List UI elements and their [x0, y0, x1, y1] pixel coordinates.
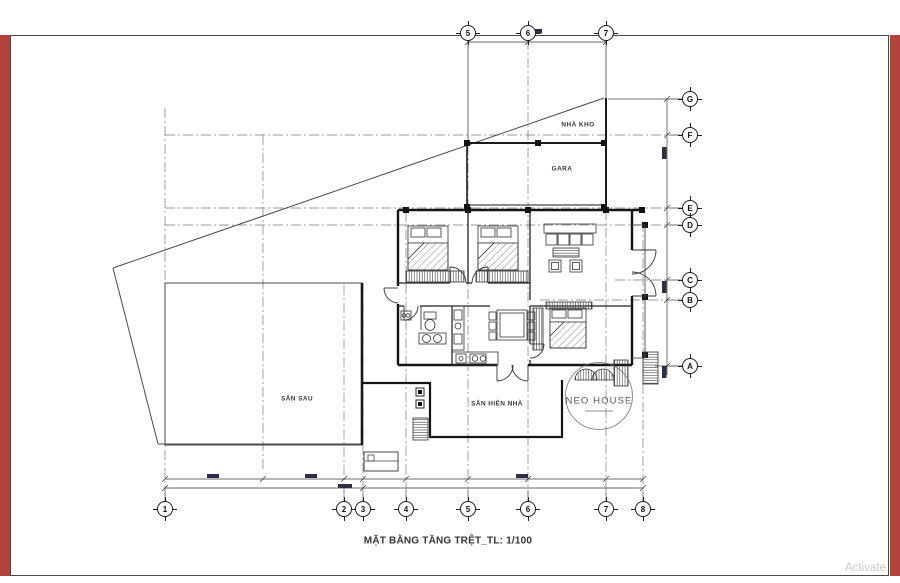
front-porch — [362, 380, 562, 471]
watermark-tagline-smudge — [585, 410, 613, 412]
right-red-bar — [890, 35, 900, 576]
garage-block — [464, 98, 607, 210]
room-label-front-porch: SÂN HIÊN NHÀ — [471, 401, 523, 408]
grid-bubble-bottom-5: 5 — [460, 501, 476, 517]
room-label-garage: GARA — [552, 166, 573, 173]
grid-bubble-bottom-7: 7 — [598, 501, 614, 517]
watermark-circle: NEO HOUSE — [565, 362, 633, 430]
grid-bubble-right-F: F — [682, 127, 698, 143]
grid-bubble-top-7: 7 — [598, 25, 614, 41]
interior-walls — [398, 210, 632, 365]
grid-bubble-bottom-8: 8 — [635, 501, 651, 517]
grid-bubble-right-D: D — [682, 217, 698, 233]
grid-bubble-right-G: G — [682, 91, 698, 107]
drawing-title: MẶT BẰNG TẦNG TRỆT_TL: 1/100 — [364, 536, 532, 547]
screenshot-root: { "page": { "title": "MẶT BẰNG TẦNG TRỆT… — [0, 0, 900, 583]
backyard-outline — [165, 283, 362, 445]
watermark-text: NEO HOUSE — [566, 395, 633, 406]
activate-watermark-text: Activate — [845, 562, 890, 574]
grid-bubble-bottom-1: 1 — [157, 501, 173, 517]
wardrobe-2 — [476, 271, 528, 282]
grid-bubble-bottom-4: 4 — [398, 501, 414, 517]
grid-bubble-bottom-2: 2 — [336, 501, 352, 517]
grid-bubble-right-C: C — [682, 272, 698, 288]
kitchen-counter — [452, 306, 498, 365]
grid-bubble-right-B: B — [682, 292, 698, 308]
grid-bubble-top-6: 6 — [520, 25, 536, 41]
master-bedroom-furniture — [533, 302, 592, 350]
grid-bubble-top-5: 5 — [460, 25, 476, 41]
room-label-backyard: SÂN SAU — [281, 396, 313, 403]
bed-1 — [408, 226, 448, 270]
grid-bubble-bottom-3: 3 — [355, 501, 371, 517]
left-red-bar — [0, 35, 10, 576]
room-label-storage: NHÀ KHO — [561, 122, 594, 129]
wardrobe-1 — [406, 271, 464, 282]
dining-table — [489, 310, 535, 340]
bathroom-fixtures — [401, 311, 446, 344]
floor-plan-drawing — [0, 0, 900, 583]
grid-bubble-bottom-6: 6 — [520, 501, 536, 517]
sofa-set — [544, 224, 596, 272]
bed-2 — [478, 226, 518, 270]
grid-bubble-right-A: A — [682, 358, 698, 374]
